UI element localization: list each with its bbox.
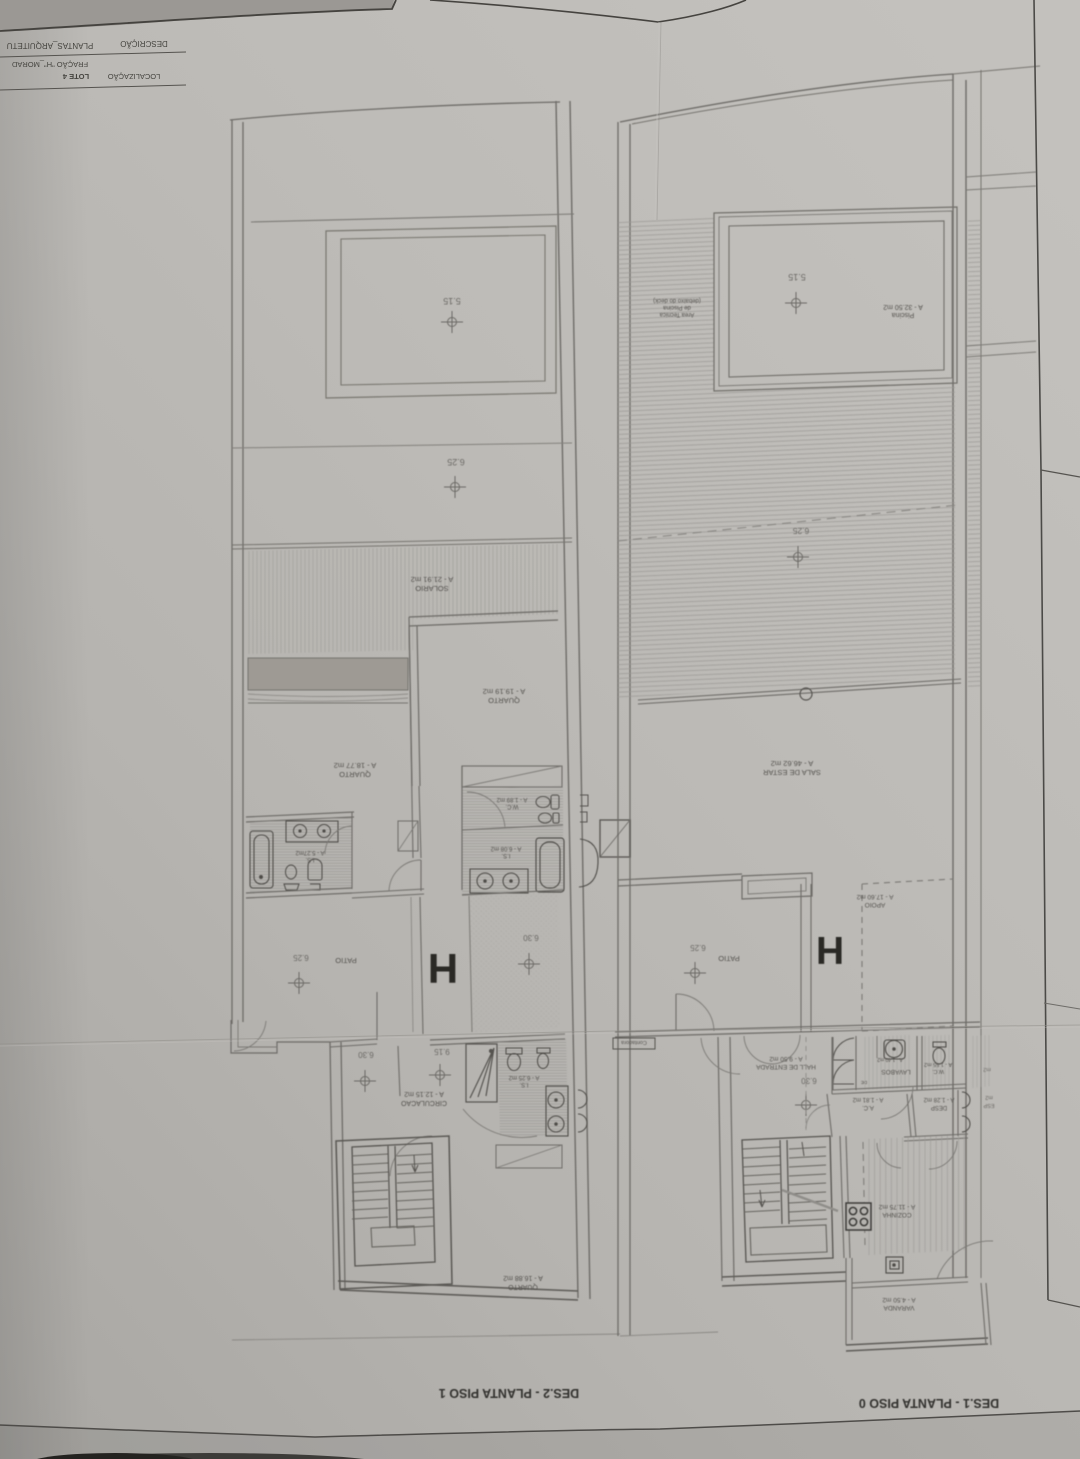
svg-text:H: H	[816, 928, 844, 971]
svg-text:6.30: 6.30	[358, 1050, 374, 1059]
svg-text:H: H	[428, 945, 458, 992]
svg-text:QUARTOA - 19.19 m2: QUARTOA - 19.19 m2	[483, 687, 526, 705]
svg-text:Contadora: Contadora	[620, 1039, 647, 1045]
svg-text:6.30: 6.30	[801, 1076, 817, 1085]
svg-text:6.30: 6.30	[523, 933, 539, 942]
svg-text:SALA DE ESTARA - 46.62 m2: SALA DE ESTARA - 46.62 m2	[763, 759, 821, 777]
svg-text:QUARTOA - 18.77 m2: QUARTOA - 18.77 m2	[334, 761, 377, 779]
svg-text:SOLARIOA - 21.91 m2: SOLARIOA - 21.91 m2	[411, 575, 454, 593]
svg-text:6.25: 6.25	[293, 953, 309, 962]
svg-text:LOCALIZAÇÃO: LOCALIZAÇÃO	[108, 72, 161, 81]
svg-text:PATIO: PATIO	[335, 956, 357, 965]
svg-text:PLANTAS_ARQUITETU: PLANTAS_ARQUITETU	[7, 41, 94, 50]
svg-text:5.15: 5.15	[443, 296, 461, 306]
svg-text:A - 1.40 m2: A - 1.40 m2	[877, 1056, 903, 1062]
svg-text:6.25: 6.25	[792, 526, 809, 536]
svg-text:DESCRIÇÃO: DESCRIÇÃO	[120, 39, 168, 48]
svg-text:LAVABOS: LAVABOS	[881, 1068, 911, 1075]
svg-text:6.25: 6.25	[447, 457, 465, 467]
svg-text:FRAÇÃO "H"_MORAD: FRAÇÃO "H"_MORAD	[11, 60, 88, 69]
svg-text:COZINHAA - 11.75 m2: COZINHAA - 11.75 m2	[878, 1203, 915, 1218]
svg-text:DES.1 - PLANTA PISO 0: DES.1 - PLANTA PISO 0	[859, 1396, 999, 1410]
svg-text:VARANDAA - 4.50 m2: VARANDAA - 4.50 m2	[882, 1296, 916, 1311]
svg-text:9.15: 9.15	[434, 1047, 450, 1056]
svg-text:6.25: 6.25	[690, 943, 706, 952]
svg-text:5.15: 5.15	[788, 272, 806, 282]
svg-text:LOTE 4: LOTE 4	[62, 72, 89, 81]
svg-text:PATIO: PATIO	[718, 954, 740, 963]
svg-text:DES.2 - PLANTA PISO 1: DES.2 - PLANTA PISO 1	[439, 1386, 579, 1400]
